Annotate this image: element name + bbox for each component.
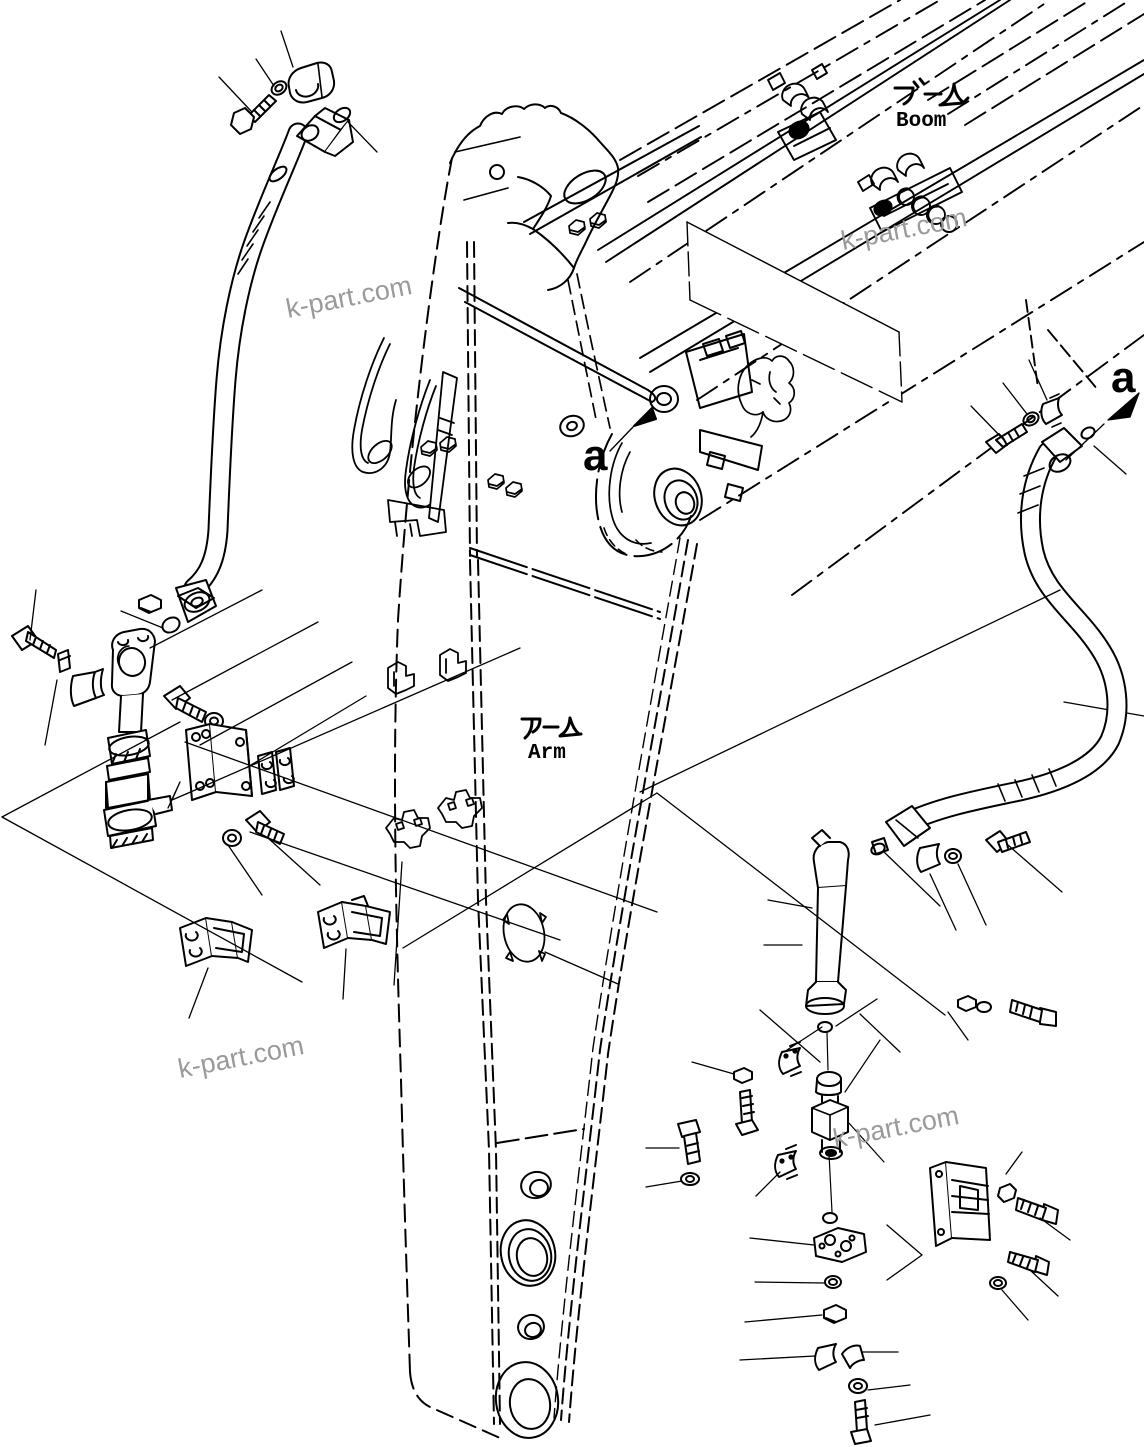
svg-text:Boom: Boom bbox=[896, 110, 946, 133]
svg-text:Arm: Arm bbox=[528, 742, 566, 765]
svg-text:a: a bbox=[1111, 353, 1136, 402]
svg-text:a: a bbox=[583, 431, 608, 480]
